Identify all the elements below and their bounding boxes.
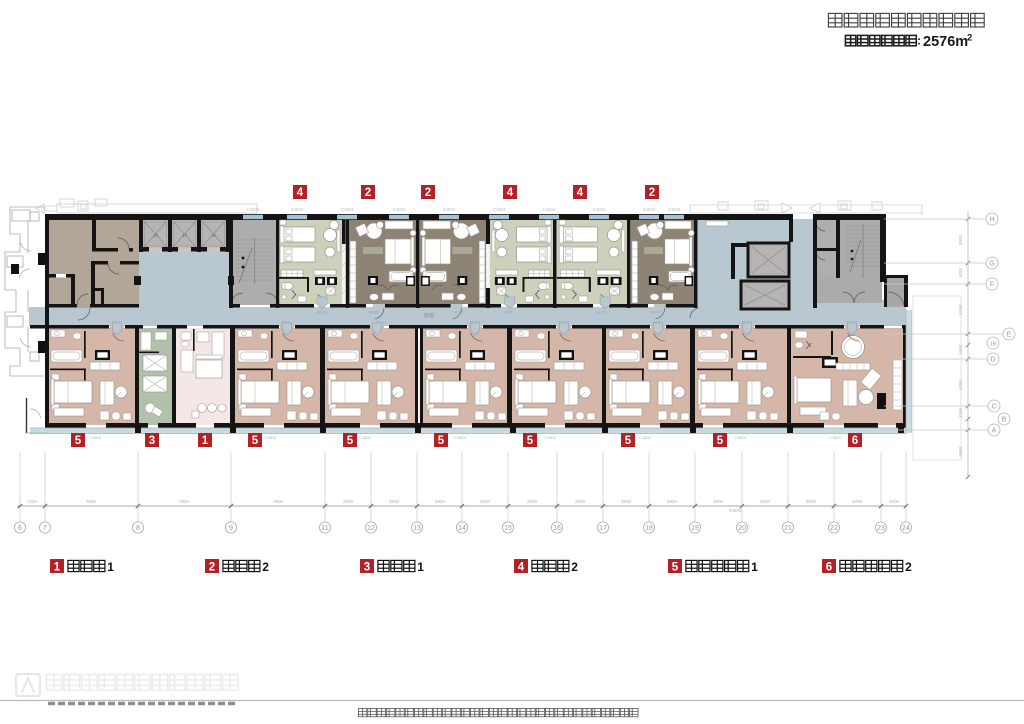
svg-text:7800: 7800: [179, 499, 190, 504]
svg-text:G: G: [989, 261, 994, 268]
svg-text:C1804: C1804: [264, 435, 277, 440]
svg-text:30600: 30600: [729, 508, 742, 513]
svg-text:14: 14: [458, 525, 466, 532]
svg-text:18: 18: [645, 525, 653, 532]
svg-text:3900: 3900: [343, 499, 354, 504]
svg-text:2: 2: [967, 33, 972, 44]
svg-text:1#: 1#: [211, 233, 217, 238]
svg-text:1400: 1400: [958, 344, 963, 355]
svg-text:F: F: [990, 282, 994, 289]
svg-text:4: 4: [297, 187, 304, 199]
svg-text:C1504: C1504: [593, 207, 606, 212]
svg-text:2: 2: [425, 187, 431, 199]
svg-text:2576m: 2576m: [923, 34, 968, 50]
svg-text:3900: 3900: [389, 499, 400, 504]
svg-text:3: 3: [149, 435, 155, 447]
svg-text:3900: 3900: [435, 499, 446, 504]
svg-text:C1504: C1504: [643, 207, 656, 212]
svg-text:1#: 1#: [182, 233, 188, 238]
svg-text:5: 5: [527, 435, 534, 447]
svg-text:3900: 3900: [852, 499, 863, 504]
svg-text:2: 2: [649, 187, 655, 199]
svg-text:C1504: C1504: [543, 207, 556, 212]
svg-text:4: 4: [577, 187, 584, 199]
svg-text:21: 21: [784, 525, 792, 532]
svg-text:A: A: [992, 428, 997, 435]
svg-text:M1021: M1021: [369, 310, 379, 314]
svg-text:C1504: C1504: [443, 207, 456, 212]
svg-text:22: 22: [830, 525, 838, 532]
svg-text:M1021: M1021: [317, 310, 327, 314]
svg-text:C1504: C1504: [493, 207, 506, 212]
svg-text:2: 2: [365, 187, 371, 199]
svg-text:3900: 3900: [760, 499, 771, 504]
svg-text:C1504: C1504: [341, 207, 354, 212]
svg-text:3900: 3900: [621, 499, 632, 504]
svg-text:15: 15: [504, 525, 512, 532]
svg-text:M1021: M1021: [504, 310, 514, 314]
svg-text:C1804: C1804: [454, 435, 467, 440]
svg-text:2: 2: [209, 562, 215, 574]
svg-text:1: 1: [417, 560, 424, 574]
svg-text:2: 2: [571, 560, 578, 574]
svg-text:7800: 7800: [86, 499, 97, 504]
svg-text:C1504: C1504: [247, 207, 260, 212]
svg-text:1050: 1050: [958, 267, 963, 278]
svg-text:7800: 7800: [273, 499, 284, 504]
svg-text:3900: 3900: [527, 499, 538, 504]
svg-text:23: 23: [877, 525, 885, 532]
svg-text:4: 4: [507, 187, 514, 199]
svg-text:5: 5: [75, 435, 82, 447]
svg-text:5: 5: [672, 562, 679, 574]
svg-text:E: E: [1007, 332, 1012, 339]
svg-text:1200: 1200: [958, 407, 963, 418]
svg-text:B: B: [1002, 417, 1007, 424]
svg-text:3900: 3900: [806, 499, 817, 504]
svg-text:1: 1: [202, 435, 209, 447]
svg-text:3: 3: [364, 562, 370, 574]
svg-text:1: 1: [751, 560, 758, 574]
svg-text:7200: 7200: [27, 499, 38, 504]
svg-text:4200: 4200: [958, 304, 963, 315]
svg-text:1: 1: [54, 562, 61, 574]
svg-text:C1504: C1504: [291, 207, 304, 212]
svg-text::: :: [917, 34, 921, 48]
svg-text:C1804: C1804: [89, 435, 102, 440]
svg-text:5: 5: [438, 435, 445, 447]
svg-text:5: 5: [717, 435, 724, 447]
svg-text:1#: 1#: [153, 233, 159, 238]
svg-text:6: 6: [826, 562, 832, 574]
svg-text:C1804: C1804: [359, 435, 372, 440]
svg-text:3900: 3900: [713, 499, 724, 504]
svg-text:16: 16: [553, 525, 561, 532]
svg-text:6: 6: [852, 435, 858, 447]
svg-text:C1504: C1504: [668, 207, 681, 212]
svg-text:C: C: [991, 404, 996, 411]
svg-text:5: 5: [625, 435, 632, 447]
svg-text:11: 11: [321, 525, 328, 532]
svg-text:C1504: C1504: [393, 207, 406, 212]
svg-text:2: 2: [262, 560, 269, 574]
svg-text:5: 5: [347, 435, 354, 447]
svg-text:M1021: M1021: [651, 310, 661, 314]
svg-text:D: D: [990, 357, 995, 364]
svg-text:9: 9: [229, 525, 233, 532]
svg-text:13: 13: [413, 525, 421, 532]
svg-text:2: 2: [905, 560, 912, 574]
svg-text:5: 5: [252, 435, 259, 447]
svg-text:7: 7: [43, 525, 47, 532]
svg-text:8: 8: [136, 525, 140, 532]
svg-text:C1804: C1804: [829, 435, 842, 440]
svg-text:C1804: C1804: [734, 435, 747, 440]
svg-text:1B: 1B: [990, 342, 997, 348]
svg-text:C1804: C1804: [639, 435, 652, 440]
svg-text:17: 17: [599, 525, 607, 532]
svg-text:2850: 2850: [958, 446, 963, 457]
svg-text:20: 20: [738, 525, 746, 532]
svg-text:4050: 4050: [958, 379, 963, 390]
svg-text:3900: 3900: [480, 499, 491, 504]
svg-text:3900: 3900: [958, 234, 963, 245]
svg-text:M1021: M1021: [596, 310, 606, 314]
svg-text:6: 6: [18, 525, 22, 532]
svg-text:2600: 2600: [889, 499, 900, 504]
svg-text:1: 1: [107, 560, 114, 574]
svg-text:12: 12: [367, 525, 375, 532]
svg-text:H: H: [989, 217, 994, 224]
svg-text:C1804: C1804: [544, 435, 557, 440]
svg-text:4: 4: [518, 562, 525, 574]
svg-text:19: 19: [691, 525, 699, 532]
svg-text:24: 24: [902, 525, 910, 532]
svg-text:3900: 3900: [667, 499, 678, 504]
svg-text:3900: 3900: [575, 499, 586, 504]
